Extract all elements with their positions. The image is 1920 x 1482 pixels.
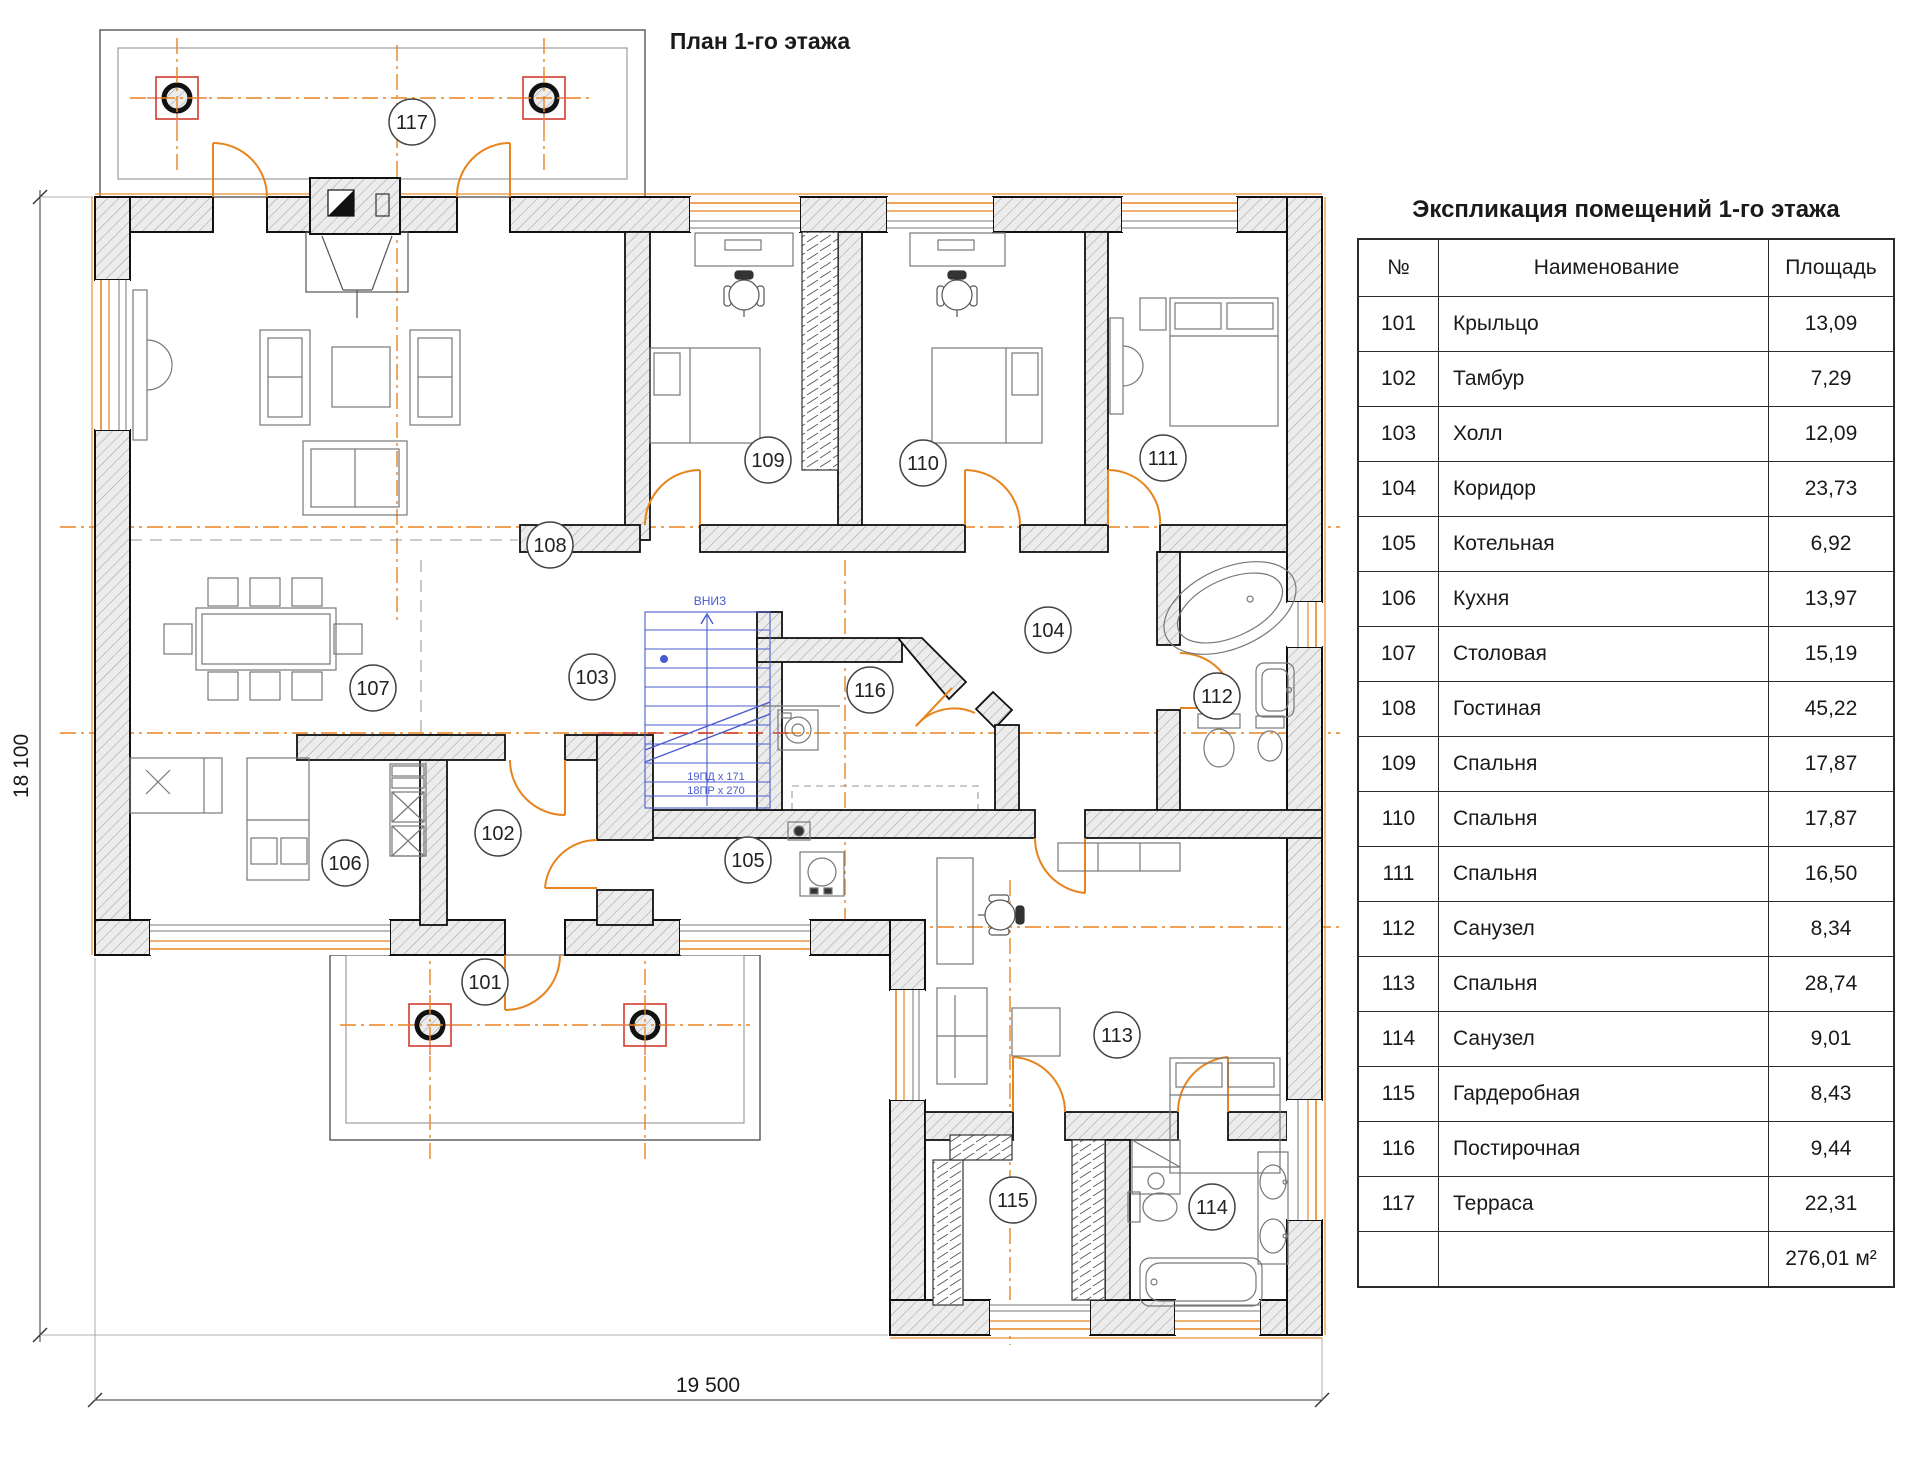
staircase: ВНИЗ 19ПД х 171 18ПР х 270 xyxy=(645,594,770,808)
table-row: 105Котельная6,92 xyxy=(1358,517,1894,572)
svg-text:117: 117 xyxy=(396,112,428,134)
room-label-108: 108 xyxy=(527,522,573,568)
porch xyxy=(330,955,760,1140)
wardrobe-icon xyxy=(1072,1140,1105,1300)
room-label-106: 106 xyxy=(322,840,368,886)
wardrobe-icon xyxy=(802,232,838,470)
room-schedule-table: № Наименование Площадь 101Крыльцо13,0910… xyxy=(1357,238,1895,1288)
open-plan-lines xyxy=(130,540,978,810)
windows xyxy=(95,197,1322,1335)
bed-icon xyxy=(932,348,1042,443)
table-row: 117Терраса22,31 xyxy=(1358,1177,1894,1232)
desk-icon xyxy=(695,233,793,266)
tv-unit-icon xyxy=(133,290,172,440)
tv-unit-icon xyxy=(1110,318,1143,414)
svg-text:107: 107 xyxy=(356,678,389,700)
room-label-112: 112 xyxy=(1194,673,1240,719)
table-header-row: № Наименование Площадь xyxy=(1358,239,1894,297)
table-total-row: 276,01 м² xyxy=(1358,1232,1894,1288)
stairs-tread-note: 19ПД х 171 xyxy=(687,771,745,783)
armchair-icon xyxy=(260,330,310,425)
room-label-101: 101 xyxy=(462,959,508,1005)
wardrobe-icon xyxy=(933,1160,963,1305)
room-label-104: 104 xyxy=(1025,607,1071,653)
nightstand-icon xyxy=(1140,298,1166,330)
fireplace-icon xyxy=(306,178,408,318)
table-row: 109Спальня17,87 xyxy=(1358,737,1894,792)
page-title: План 1-го этажа xyxy=(540,28,980,55)
desk-icon xyxy=(937,858,973,964)
header-area: Площадь xyxy=(1769,239,1895,297)
table-row: 113Спальня28,74 xyxy=(1358,957,1894,1012)
room-label-114: 114 xyxy=(1189,1184,1235,1230)
svg-text:109: 109 xyxy=(751,450,784,472)
table-row: 103Холл12,09 xyxy=(1358,407,1894,462)
toilet-icon xyxy=(1198,714,1240,767)
coffee-table-icon xyxy=(332,347,390,407)
table-title: Экспликация помещений 1-го этажа xyxy=(1357,196,1895,224)
room-label-110: 110 xyxy=(900,440,946,486)
sofa-icon xyxy=(937,988,987,1084)
svg-text:104: 104 xyxy=(1031,620,1064,642)
table-row: 115Гардеробная8,43 xyxy=(1358,1067,1894,1122)
svg-text:116: 116 xyxy=(854,680,886,702)
vanity-icon xyxy=(1258,1152,1288,1264)
room-table-body: № Наименование Площадь 101Крыльцо13,0910… xyxy=(1358,239,1894,1287)
room-label-113: 113 xyxy=(1094,1012,1140,1058)
table-row: 104Коридор23,73 xyxy=(1358,462,1894,517)
room-label-109: 109 xyxy=(745,437,791,483)
exterior-walls xyxy=(95,197,1322,1335)
svg-text:113: 113 xyxy=(1101,1025,1133,1047)
dining-table-icon xyxy=(164,578,362,700)
bathtub-icon xyxy=(1140,1258,1262,1306)
svg-text:110: 110 xyxy=(907,453,939,475)
wardrobe-icon xyxy=(950,1135,1012,1160)
table-row: 110Спальня17,87 xyxy=(1358,792,1894,847)
room-label-102: 102 xyxy=(475,810,521,856)
room-label-111: 111 xyxy=(1140,435,1186,481)
furniture xyxy=(130,232,1310,1306)
svg-text:115: 115 xyxy=(997,1190,1029,1212)
armchair-icon xyxy=(410,330,460,425)
room-label-107: 107 xyxy=(350,665,396,711)
dimension-width: 19 500 xyxy=(88,958,1329,1407)
kitchen-counter-icon xyxy=(130,758,222,813)
shower-icon xyxy=(1132,1140,1180,1194)
svg-text:114: 114 xyxy=(1196,1197,1228,1219)
room-label-117: 117 xyxy=(389,99,435,145)
table-row: 112Санузел8,34 xyxy=(1358,902,1894,957)
bed-icon xyxy=(1170,298,1278,426)
room-label-115: 115 xyxy=(990,1177,1036,1223)
kitchen-island-icon xyxy=(247,758,309,880)
svg-text:19 500: 19 500 xyxy=(676,1374,740,1397)
header-name: Наименование xyxy=(1439,239,1769,297)
side-table-icon xyxy=(1012,1008,1060,1056)
svg-text:103: 103 xyxy=(575,667,608,689)
table-row: 107Столовая15,19 xyxy=(1358,627,1894,682)
table-row: 101Крыльцо13,09 xyxy=(1358,297,1894,352)
stairs-tread-note: 18ПР х 270 xyxy=(687,785,744,797)
dresser-icon xyxy=(1058,843,1180,871)
sofa-icon xyxy=(303,441,407,515)
header-number: № xyxy=(1358,239,1439,297)
room-label-116: 116 xyxy=(847,667,893,713)
svg-text:18 100: 18 100 xyxy=(10,734,33,798)
svg-text:106: 106 xyxy=(328,853,361,875)
table-row: 114Санузел9,01 xyxy=(1358,1012,1894,1067)
table-row: 111Спальня16,50 xyxy=(1358,847,1894,902)
svg-text:108: 108 xyxy=(533,535,566,557)
stairs-down-label: ВНИЗ xyxy=(694,594,727,608)
table-row: 116Постирочная9,44 xyxy=(1358,1122,1894,1177)
room-label-103: 103 xyxy=(569,654,615,700)
table-row: 106Кухня13,97 xyxy=(1358,572,1894,627)
terrace xyxy=(100,30,645,197)
bed-icon xyxy=(650,348,760,443)
svg-text:101: 101 xyxy=(468,972,501,994)
table-row: 102Тамбур7,29 xyxy=(1358,352,1894,407)
washing-machine-icon xyxy=(778,710,818,750)
svg-text:105: 105 xyxy=(731,850,764,872)
room-label-105: 105 xyxy=(725,837,771,883)
page: ВНИЗ 19ПД х 171 18ПР х 270 xyxy=(0,0,1920,1482)
svg-text:102: 102 xyxy=(481,823,514,845)
table-row: 108Гостиная45,22 xyxy=(1358,682,1894,737)
svg-text:111: 111 xyxy=(1148,448,1178,470)
toilet-icon xyxy=(1128,1192,1177,1222)
bidet-icon xyxy=(1256,716,1284,761)
svg-text:112: 112 xyxy=(1201,686,1233,708)
desk-icon xyxy=(910,233,1005,266)
